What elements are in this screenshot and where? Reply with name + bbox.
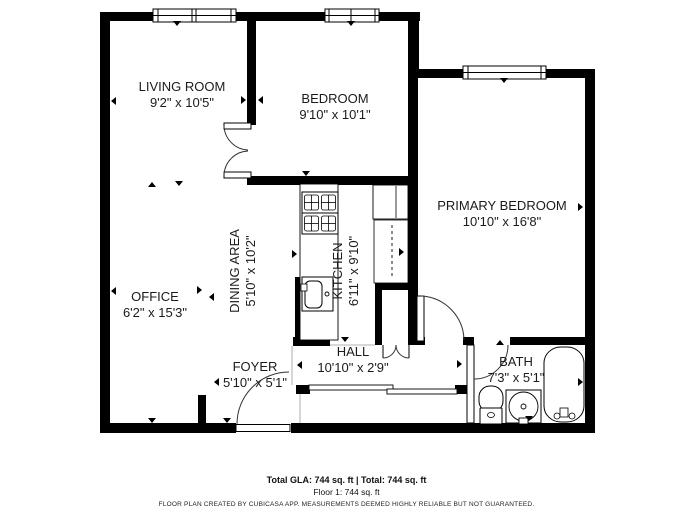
svg-text:6'11" x 9'10": 6'11" x 9'10" [346,235,361,306]
living-room-window-icon [153,9,236,22]
svg-text:HALL: HALL [337,344,370,359]
room-label-living-room: LIVING ROOM 9'2" x 10'5" [139,79,226,110]
bedroom-window-icon [325,9,379,22]
room-label-bath: BATH 7'3" x 5'1" [488,354,545,385]
svg-text:BEDROOM: BEDROOM [301,91,368,106]
disclaimer-text: FLOOR PLAN CREATED BY CUBICASA APP. MEAS… [0,501,693,508]
windows [153,9,546,79]
svg-text:7'3" x 5'1": 7'3" x 5'1" [488,370,545,385]
primary-bedroom-door-icon [417,296,464,341]
kitchen-sink-icon [301,277,333,311]
vanity-sink-icon [506,390,541,424]
room-label-foyer: FOYER 5'10" x 5'1" [223,359,287,390]
room-label-dining-area: DINING AREA 5'10" x 10'2" [227,229,258,313]
svg-text:10'10" x 16'8": 10'10" x 16'8" [463,214,542,229]
svg-text:9'10" x 10'1": 9'10" x 10'1" [299,107,371,122]
toilet-icon [479,386,503,424]
svg-text:5'10" x 5'1": 5'10" x 5'1" [223,375,287,390]
svg-text:BATH: BATH [499,354,533,369]
svg-text:LIVING ROOM: LIVING ROOM [139,79,226,94]
sliding-closet-doors-icon [309,385,457,394]
svg-text:5'10" x 10'2": 5'10" x 10'2" [243,235,258,307]
refrigerator-icon [373,185,408,219]
stove-icon [302,192,338,234]
svg-text:PRIMARY BEDROOM: PRIMARY BEDROOM [437,198,567,213]
room-label-hall: HALL 10'10" x 2'9" [317,344,389,375]
room-label-bedroom: BEDROOM 9'10" x 10'1" [299,91,371,122]
floor-area-text: Floor 1: 744 sq. ft [0,487,693,497]
svg-text:9'2" x 10'5": 9'2" x 10'5" [150,95,214,110]
svg-text:DINING AREA: DINING AREA [227,229,242,313]
bath-wall [467,345,474,423]
svg-text:6'2" x 15'3": 6'2" x 15'3" [123,305,187,320]
room-label-kitchen: KITCHEN 6'11" x 9'10" [330,235,361,306]
svg-text:FOYER: FOYER [233,359,278,374]
french-doors-icon [224,123,251,178]
svg-text:OFFICE: OFFICE [131,289,179,304]
primary-bedroom-window-icon [463,66,546,79]
svg-text:KITCHEN: KITCHEN [330,242,345,299]
svg-text:10'10" x 2'9": 10'10" x 2'9" [317,360,389,375]
floor-plan-drawing: LIVING ROOM 9'2" x 10'5" BEDROOM 9'10" x… [0,0,693,520]
room-label-office: OFFICE 6'2" x 15'3" [123,289,187,320]
floor-plan: LIVING ROOM 9'2" x 10'5" BEDROOM 9'10" x… [0,0,693,520]
total-area-text: Total GLA: 744 sq. ft | Total: 744 sq. f… [0,475,693,485]
room-label-primary-bedroom: PRIMARY BEDROOM 10'10" x 16'8" [437,198,567,229]
bifold-closet-doors-icon [383,345,409,358]
